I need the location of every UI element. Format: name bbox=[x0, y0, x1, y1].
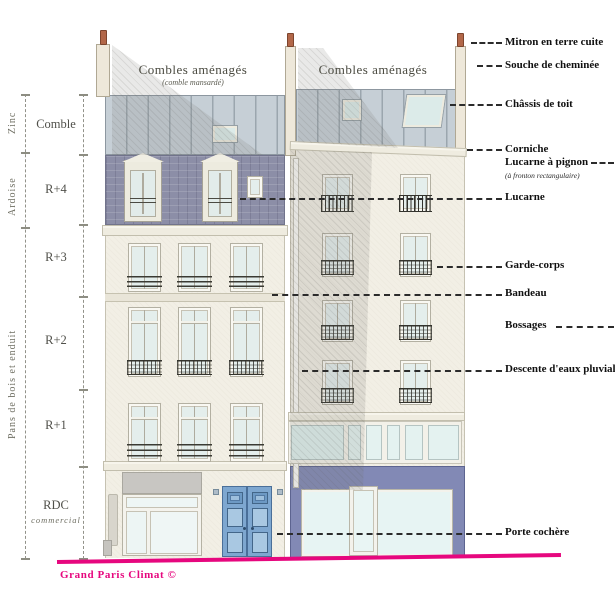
annotation-bandeau: Bandeau bbox=[505, 287, 547, 299]
credit-text: Grand Paris Climat © bbox=[60, 569, 176, 581]
dormer-window bbox=[208, 170, 232, 217]
garde-corps bbox=[399, 388, 432, 403]
window-transom bbox=[131, 321, 158, 324]
window bbox=[128, 403, 161, 462]
scale-tick bbox=[79, 94, 88, 96]
floor-label-comble: Comble bbox=[30, 117, 82, 132]
annotation-mitron: Mitron en terre cuite bbox=[505, 36, 603, 48]
door-top-panel bbox=[252, 492, 268, 504]
lucarne-window bbox=[247, 176, 263, 198]
leader-garde-corps bbox=[437, 266, 502, 268]
window-transom bbox=[181, 321, 208, 324]
window bbox=[400, 233, 431, 277]
door-panel-inset bbox=[230, 495, 240, 501]
window bbox=[230, 403, 263, 462]
roof-subtitle-left: (comble mansardé) bbox=[118, 78, 268, 87]
floor-label-r3: R+3 bbox=[30, 250, 82, 265]
door-panel bbox=[252, 508, 268, 527]
window-transom bbox=[181, 417, 208, 420]
door-top-panel bbox=[227, 492, 243, 504]
roof-title-left: Combles aménagés bbox=[118, 62, 268, 78]
garde-corps bbox=[127, 276, 162, 289]
floor-label-r4: R+4 bbox=[30, 182, 82, 197]
leader-porte-cochere bbox=[277, 533, 502, 535]
garde-corps bbox=[399, 325, 432, 340]
corniche-left bbox=[102, 225, 288, 236]
leader-descente bbox=[302, 370, 502, 372]
annotation-porte-cochere: Porte cochère bbox=[505, 526, 569, 538]
garde-corps bbox=[177, 276, 212, 289]
door-panel-inset bbox=[255, 495, 265, 501]
leader-bandeau bbox=[272, 294, 502, 296]
mezzanine-glass bbox=[387, 425, 400, 460]
garde-corps bbox=[229, 444, 264, 459]
scale-tick bbox=[21, 152, 30, 154]
annotation-lucarne: Lucarne bbox=[505, 191, 545, 203]
garde-corps bbox=[177, 360, 212, 375]
door-leaf-divider bbox=[246, 487, 248, 556]
window bbox=[128, 243, 161, 292]
garde-corps bbox=[229, 276, 264, 289]
window-mullion bbox=[142, 173, 144, 214]
leader-corniche bbox=[467, 149, 502, 151]
floor-label-rdc: RDC bbox=[30, 498, 82, 513]
chimney-stack bbox=[96, 44, 110, 97]
lucarne-a-pignon bbox=[124, 160, 162, 222]
leader-chassis bbox=[450, 104, 502, 106]
door-side-stud bbox=[277, 489, 283, 495]
window bbox=[400, 174, 431, 212]
window-transom bbox=[131, 417, 158, 420]
mezzanine-glass bbox=[428, 425, 459, 460]
floor-label-r2: R+2 bbox=[30, 333, 82, 348]
shop-window-glass bbox=[150, 511, 198, 554]
window bbox=[230, 307, 263, 377]
annotation-corniche: Corniche bbox=[505, 143, 548, 155]
annotation-lucarne-pignon-sub: (à fronton rectangulaire) bbox=[505, 171, 580, 180]
door-panel bbox=[252, 532, 268, 553]
annotation-bossages: Bossages bbox=[505, 319, 547, 331]
chimney-stack bbox=[455, 46, 466, 150]
scale-tick bbox=[79, 296, 88, 298]
pilaster bbox=[108, 494, 118, 546]
annotation-souche: Souche de cheminée bbox=[505, 59, 599, 71]
materials-dashed-line bbox=[25, 94, 26, 559]
window-glass bbox=[250, 179, 260, 195]
bandeau bbox=[105, 293, 285, 302]
garde-corps bbox=[208, 198, 232, 206]
floors-dashed-line bbox=[83, 94, 84, 559]
door-side-stud bbox=[213, 489, 219, 495]
door-panel bbox=[227, 508, 243, 527]
scale-tick bbox=[79, 154, 88, 156]
chimney-stack bbox=[285, 46, 296, 156]
leader-lucarne bbox=[240, 198, 502, 200]
wall-sign bbox=[103, 540, 112, 556]
leader-lucarne-pignon bbox=[591, 162, 614, 164]
lucarne-a-pignon bbox=[202, 160, 238, 222]
gable-shadow-right-facade bbox=[290, 150, 375, 490]
leader-souche bbox=[477, 65, 502, 67]
window bbox=[178, 307, 211, 377]
scale-tick bbox=[79, 389, 88, 391]
scale-tick bbox=[21, 227, 30, 229]
window bbox=[230, 243, 263, 292]
rdc-band-left bbox=[103, 461, 287, 471]
window bbox=[400, 300, 431, 342]
scale-tick bbox=[21, 94, 30, 96]
window bbox=[128, 307, 161, 377]
roof-skylight-large bbox=[403, 95, 445, 127]
elevation-diagram: Zinc Ardoise Pans de bois et enduit Comb… bbox=[0, 0, 615, 608]
garde-corps bbox=[177, 444, 212, 459]
window bbox=[400, 360, 431, 405]
mitron-terracotta bbox=[100, 30, 107, 45]
window-transom bbox=[233, 417, 260, 420]
material-label-ardoise: Ardoise bbox=[7, 168, 18, 226]
garde-corps bbox=[229, 360, 264, 375]
annotation-lucarne-pignon: Lucarne à pignon bbox=[505, 156, 588, 168]
door-panel bbox=[227, 532, 243, 553]
mitron-terracotta bbox=[287, 33, 294, 47]
garde-corps bbox=[127, 360, 162, 375]
garde-corps bbox=[399, 260, 432, 275]
garde-corps bbox=[127, 444, 162, 459]
roof-title-right: Combles aménagés bbox=[303, 62, 443, 78]
material-label-zinc: Zinc bbox=[7, 102, 18, 144]
annotation-garde-corps: Garde-corps bbox=[505, 259, 564, 271]
shop-door bbox=[126, 511, 147, 554]
scale-tick bbox=[79, 466, 88, 468]
leader-mitron bbox=[471, 42, 502, 44]
shop-door-glass bbox=[353, 490, 374, 552]
porte-cochere-door bbox=[222, 486, 272, 557]
window bbox=[178, 243, 211, 292]
mitron-terracotta bbox=[457, 33, 464, 47]
shop-fascia bbox=[122, 472, 202, 494]
mezzanine-glass bbox=[405, 425, 423, 460]
dormer-window bbox=[130, 170, 156, 217]
scale-tick bbox=[79, 224, 88, 226]
floor-label-r1: R+1 bbox=[30, 418, 82, 433]
door-knob bbox=[243, 527, 246, 530]
window bbox=[178, 403, 211, 462]
mezzanine-glass bbox=[366, 425, 382, 460]
door-knob bbox=[251, 527, 254, 530]
window-mullion bbox=[219, 173, 221, 214]
annotation-chassis: Châssis de toit bbox=[505, 98, 573, 110]
annotation-descente: Descente d'eaux pluviales bbox=[505, 363, 615, 375]
window-transom bbox=[233, 321, 260, 324]
garde-corps bbox=[130, 198, 156, 206]
material-label-pans-de-bois: Pans de bois et enduit bbox=[7, 282, 18, 487]
scale-tick bbox=[21, 558, 30, 560]
floor-sublabel-commercial: commercial bbox=[24, 515, 88, 525]
shop-transom-glass bbox=[126, 497, 198, 508]
leader-bossages bbox=[556, 326, 614, 328]
